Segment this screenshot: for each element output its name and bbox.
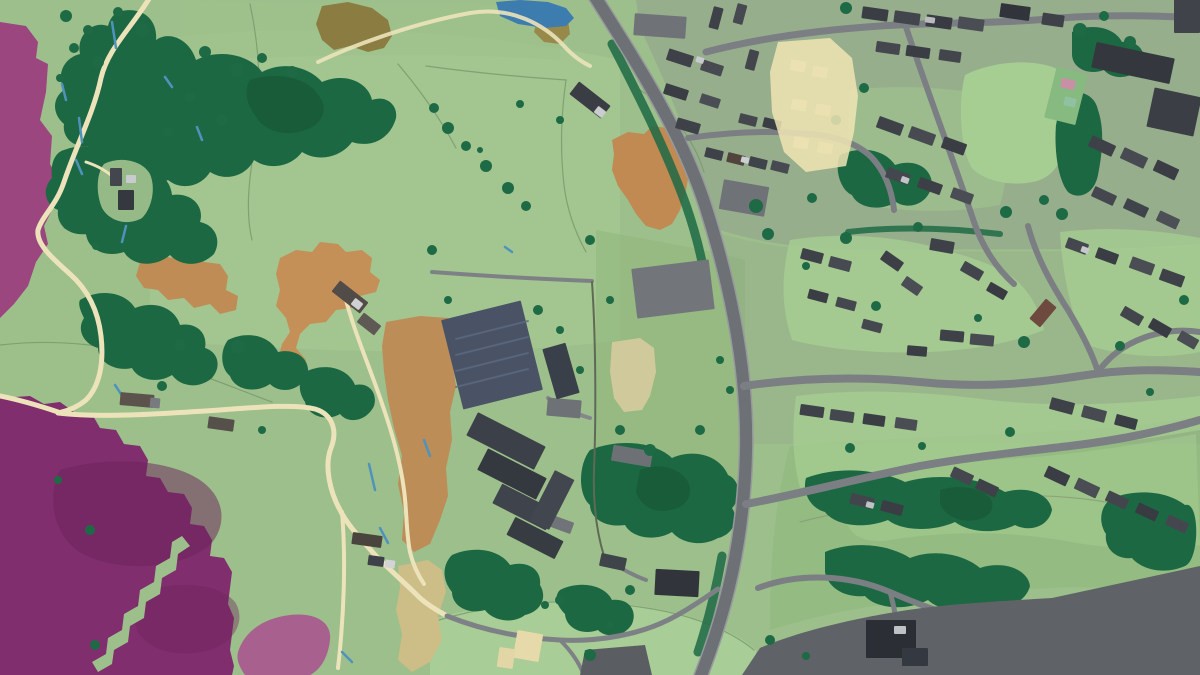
- map-svg: [0, 0, 1200, 675]
- aerial-map-screenshot: [0, 0, 1200, 675]
- map-canvas[interactable]: [0, 0, 1200, 675]
